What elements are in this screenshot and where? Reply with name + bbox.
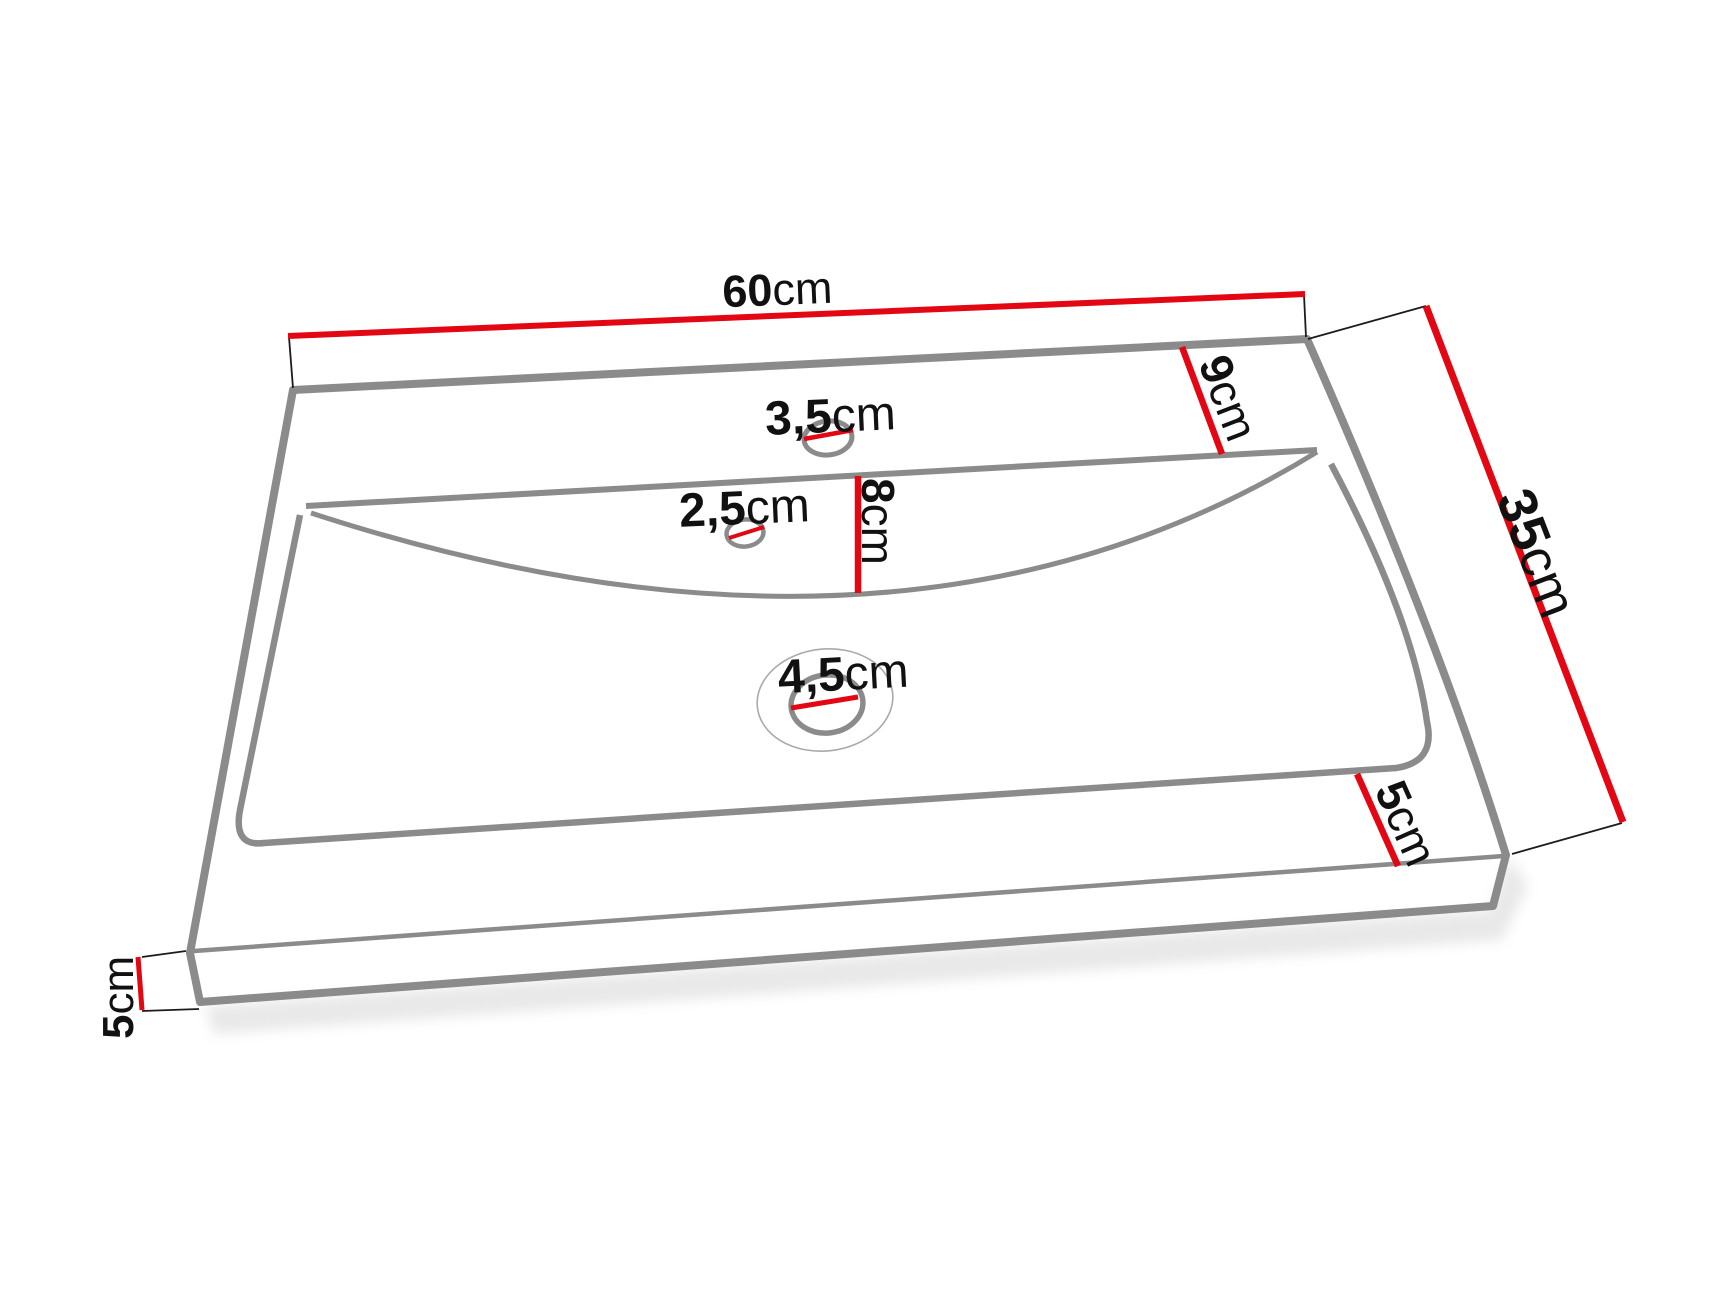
sink-dimension-diagram: 60cm 35cm 9cm 8cm 5cm 5cm 3,5cm 2,5cm 4,… — [0, 0, 1726, 1295]
extension-line-35-bottom — [1512, 823, 1622, 854]
extension-line-35-top — [1308, 306, 1426, 339]
extension-line-60-left — [289, 337, 293, 388]
label-depth-35cm: 35cm — [1485, 481, 1588, 626]
extension-line-5-left-top — [142, 951, 186, 957]
label-overflow-hole-2-5cm: 2,5cm — [678, 479, 811, 538]
basin-rim-back-edge — [306, 450, 1317, 506]
sink-diagram-canvas: 60cm 35cm 9cm 8cm 5cm 5cm 3,5cm 2,5cm 4,… — [0, 0, 1726, 1295]
label-basin-depth-8cm: 8cm — [852, 478, 904, 565]
extension-line-5-left-bottom — [142, 1009, 199, 1011]
drop-shadow — [205, 857, 1528, 1034]
basin-inner-curve — [311, 452, 1317, 596]
label-drain-hole-4-5cm: 4,5cm — [777, 645, 910, 705]
extension-line-60-right — [1304, 295, 1306, 337]
label-faucet-hole-3-5cm: 3,5cm — [764, 387, 897, 446]
label-thickness-5cm: 5cm — [94, 956, 143, 1039]
label-width-60cm: 60cm — [721, 262, 833, 318]
